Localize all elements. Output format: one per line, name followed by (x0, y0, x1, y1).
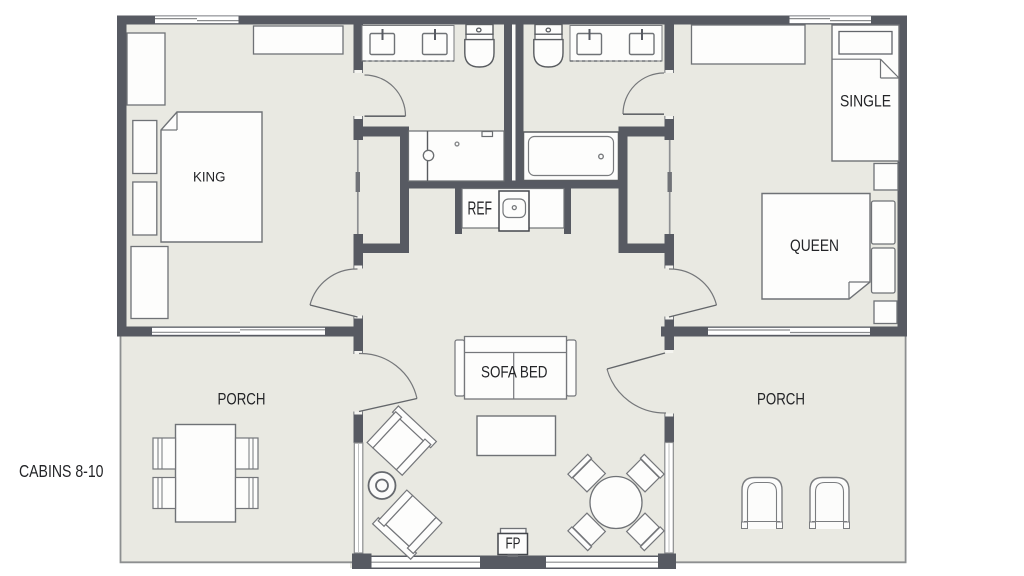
svg-text:FP: FP (506, 536, 521, 553)
svg-text:SOFA BED: SOFA BED (481, 363, 548, 382)
svg-text:REF: REF (468, 199, 493, 219)
svg-text:KING: KING (193, 170, 226, 185)
svg-text:PORCH: PORCH (757, 390, 805, 409)
svg-text:PORCH: PORCH (218, 390, 266, 409)
svg-text:SINGLE: SINGLE (840, 92, 891, 111)
svg-text:QUEEN: QUEEN (790, 236, 839, 255)
svg-text:CABINS 8-10: CABINS 8-10 (19, 461, 104, 481)
